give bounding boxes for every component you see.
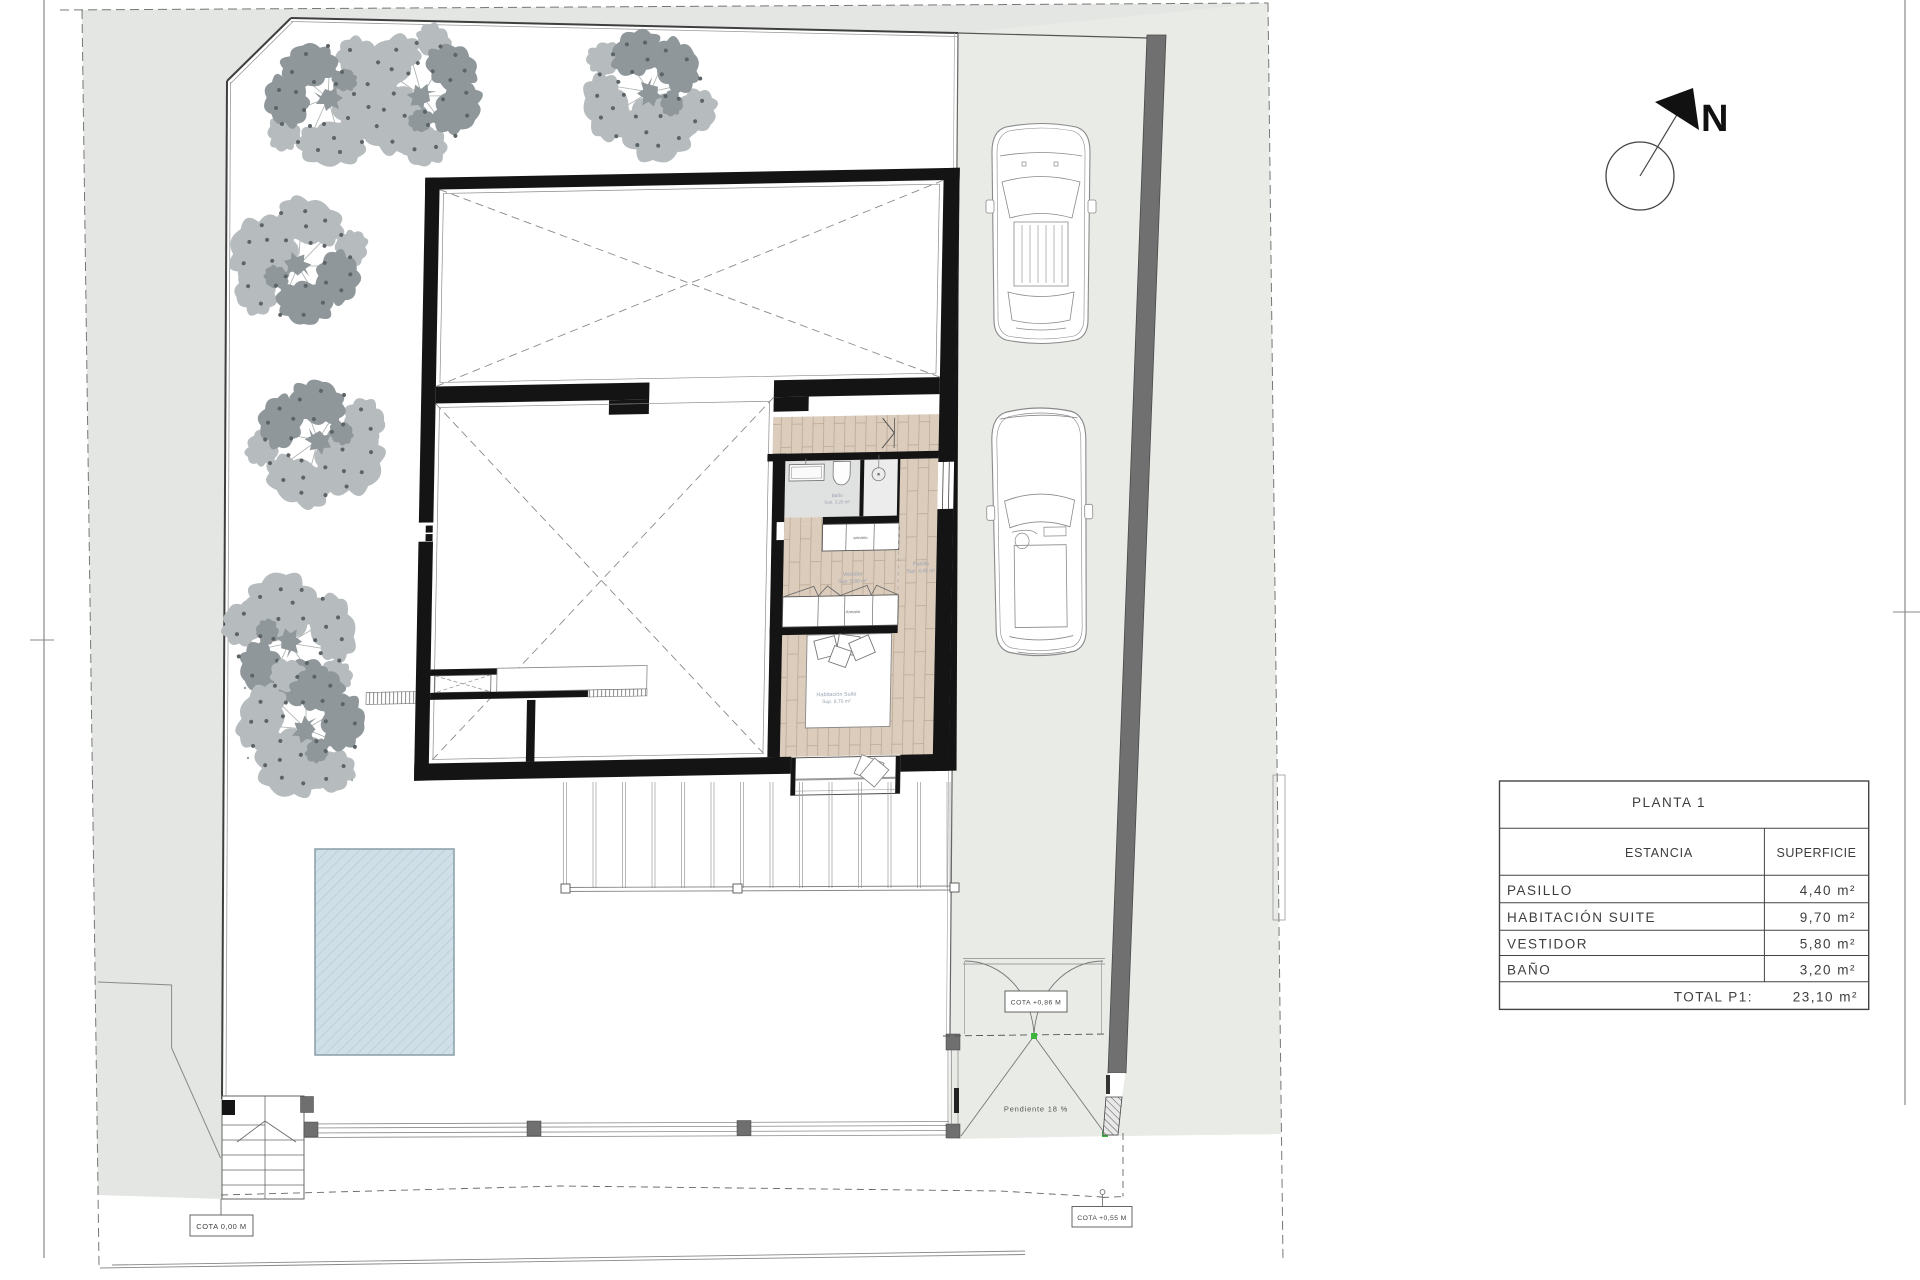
svg-text:3,20 m²: 3,20 m²	[1800, 963, 1856, 978]
svg-text:Habitación Suite: Habitación Suite	[816, 692, 856, 699]
svg-text:PLANTA 1: PLANTA 1	[1632, 795, 1706, 810]
svg-text:9,70 m²: 9,70 m²	[1800, 910, 1856, 925]
svg-text:Sup. 5,80 m²: Sup. 5,80 m²	[838, 578, 867, 585]
svg-text:Baño: Baño	[832, 493, 844, 499]
svg-text:COTA +0,86 M: COTA +0,86 M	[1011, 1000, 1062, 1007]
svg-text:5,80 m²: 5,80 m²	[1800, 937, 1856, 952]
svg-text:SUPERFICIE: SUPERFICIE	[1776, 846, 1856, 860]
svg-text:Sup. 3,20 m²: Sup. 3,20 m²	[824, 499, 850, 504]
svg-text:Pendiente 18 %: Pendiente 18 %	[1004, 1105, 1068, 1114]
svg-text:Pasillo: Pasillo	[913, 561, 929, 567]
svg-text:HABITACIÓN SUITE: HABITACIÓN SUITE	[1507, 910, 1656, 925]
svg-text:PASILLO: PASILLO	[1507, 883, 1573, 898]
svg-text:Armario: Armario	[846, 609, 861, 614]
svg-text:BAÑO: BAÑO	[1507, 963, 1551, 978]
svg-text:4,40 m²: 4,40 m²	[1800, 883, 1856, 898]
svg-text:23,10 m²: 23,10 m²	[1793, 990, 1858, 1005]
svg-text:TOTAL P1:: TOTAL P1:	[1674, 990, 1753, 1005]
svg-text:Sup. 4,40 m²: Sup. 4,40 m²	[906, 568, 935, 575]
svg-text:armario: armario	[853, 535, 868, 540]
svg-text:N: N	[1701, 98, 1728, 140]
svg-text:Sup. 9,70 m²: Sup. 9,70 m²	[822, 699, 851, 706]
svg-text:VESTIDOR: VESTIDOR	[1507, 937, 1588, 952]
svg-text:ESTANCIA: ESTANCIA	[1625, 846, 1693, 860]
svg-text:COTA 0,00 M: COTA 0,00 M	[196, 1222, 246, 1231]
svg-text:COTA +0,55 M: COTA +0,55 M	[1077, 1215, 1126, 1222]
svg-text:Vestidor: Vestidor	[843, 571, 863, 577]
